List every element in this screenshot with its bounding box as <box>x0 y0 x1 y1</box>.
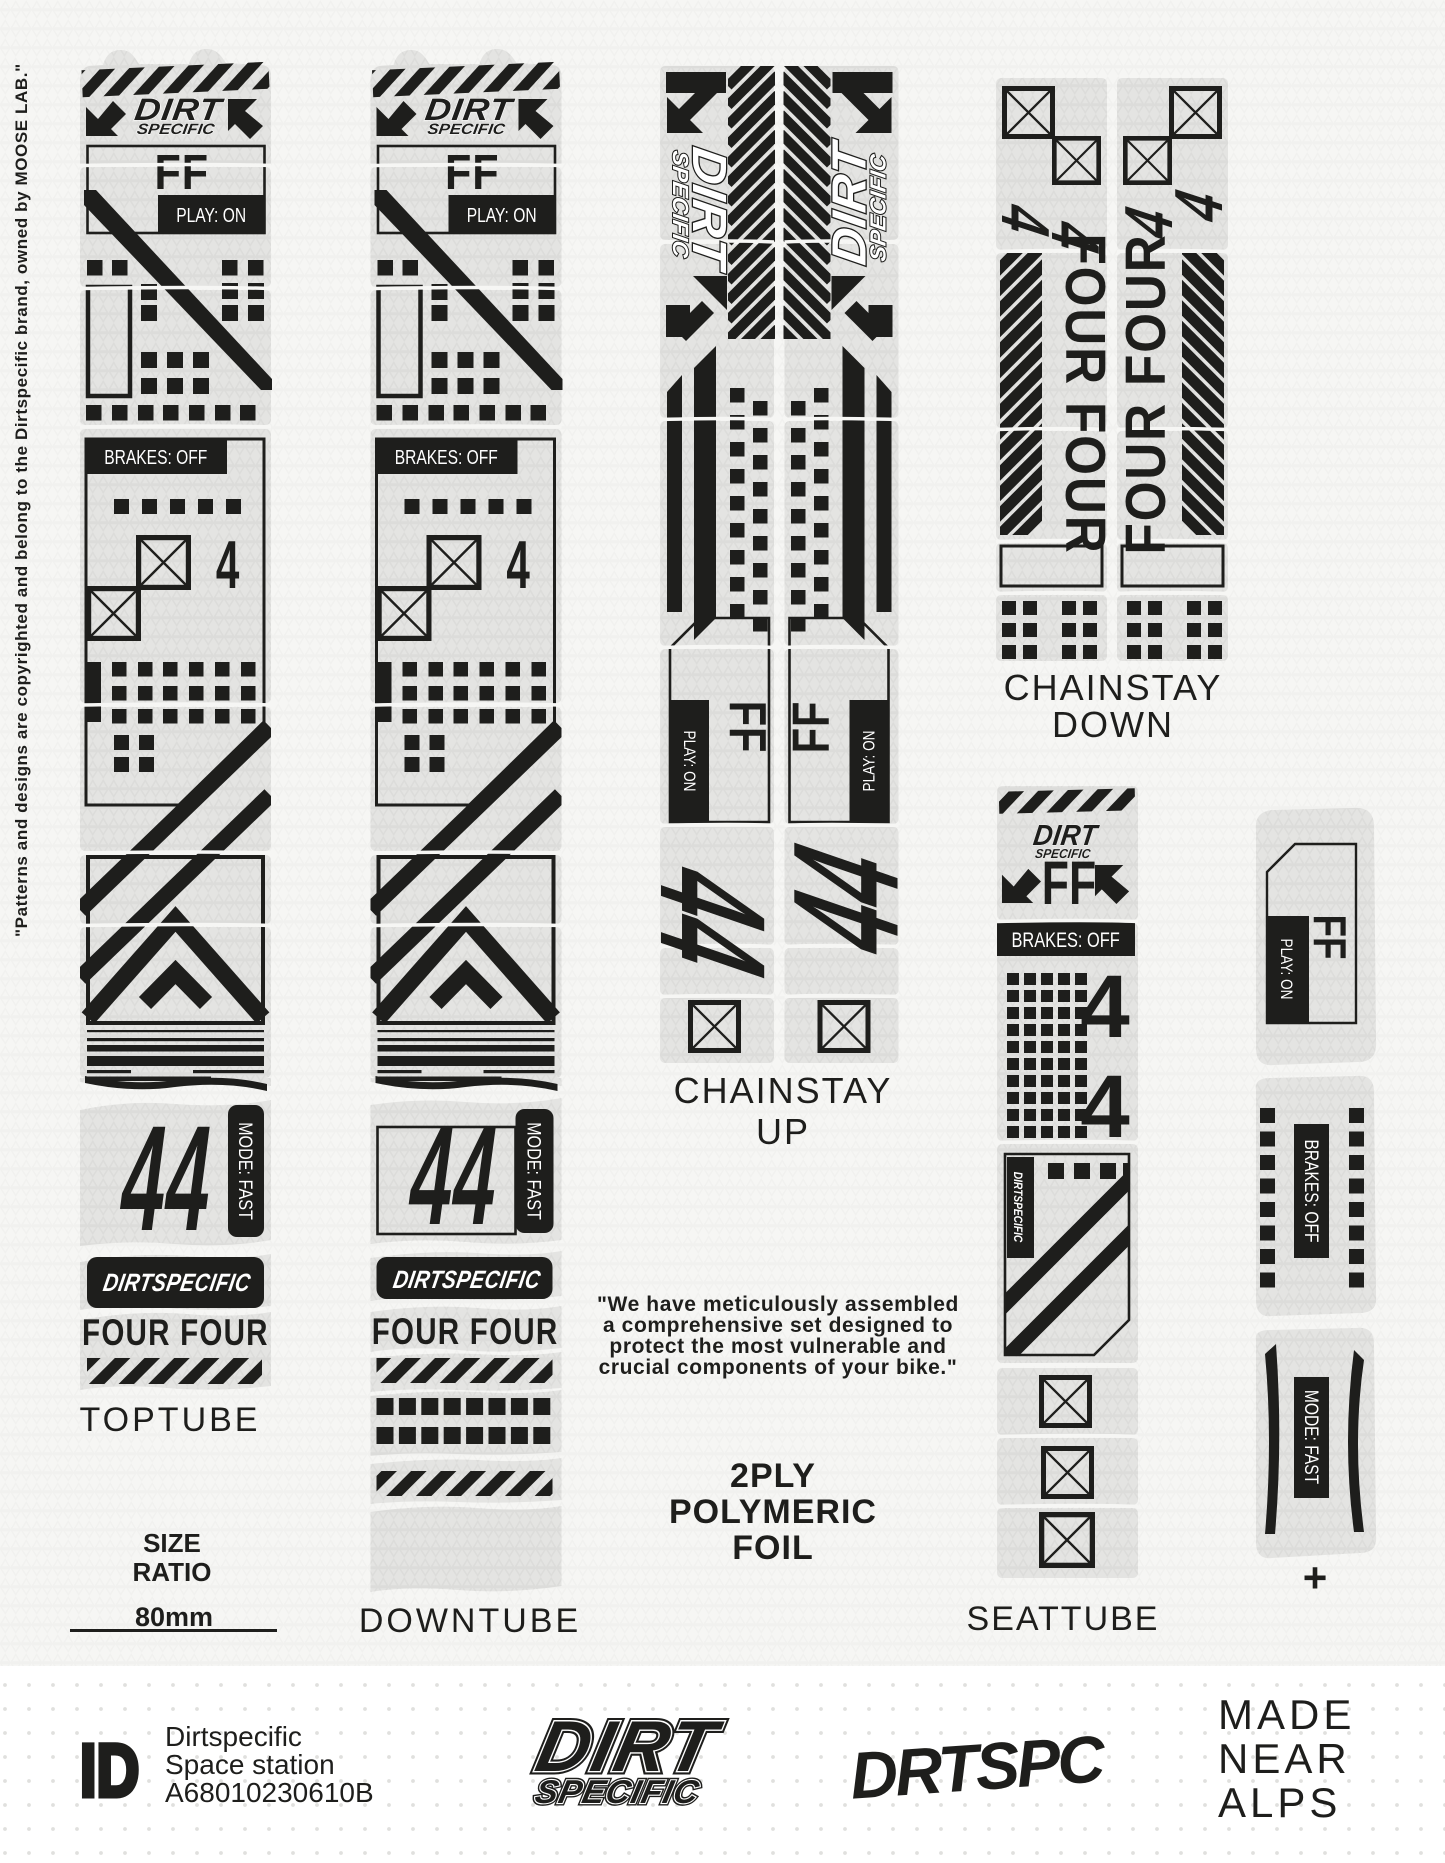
svg-text:FOUR FOUR: FOUR FOUR <box>82 1313 269 1354</box>
svg-text:a comprehensive set designed: a comprehensive set designed to <box>603 1314 953 1337</box>
svg-text:SPECIFIC: SPECIFIC <box>532 1775 703 1811</box>
svg-text:Dirtspecific: Dirtspecific <box>165 1721 302 1752</box>
svg-text:UP: UP <box>756 1111 810 1152</box>
svg-text:FOIL: FOIL <box>732 1529 813 1567</box>
svg-text:A68010230610B: A68010230610B <box>165 1777 374 1808</box>
svg-text:Space station: Space station <box>165 1749 335 1780</box>
svg-text:MODE: FAST: MODE: FAST <box>235 1122 257 1220</box>
svg-text:DOWNTUBE: DOWNTUBE <box>359 1602 581 1640</box>
svg-text:4: 4 <box>216 527 240 603</box>
svg-text:"We have meticulously assemble: "We have meticulously assembled <box>597 1293 959 1316</box>
svg-text:protect the most vulnerable an: protect the most vulnerable and <box>609 1335 946 1358</box>
svg-text:PLAY: ON: PLAY: ON <box>860 731 879 792</box>
svg-text:4: 4 <box>506 527 530 603</box>
svg-text:MADE: MADE <box>1218 1691 1355 1738</box>
svg-text:RATIO: RATIO <box>133 1557 212 1587</box>
svg-text:FOUR FOUR: FOUR FOUR <box>1115 233 1178 554</box>
svg-text:crucial components of your bik: crucial components of your bike." <box>599 1356 958 1379</box>
svg-text:FF: FF <box>781 701 840 753</box>
svg-text:SPECIFIC: SPECIFIC <box>426 122 506 138</box>
svg-text:NEAR: NEAR <box>1218 1735 1351 1782</box>
svg-text:SEATTUBE: SEATTUBE <box>967 1600 1160 1638</box>
svg-text:MODE: FAST: MODE: FAST <box>523 1122 545 1220</box>
svg-text:SPECIFIC: SPECIFIC <box>865 152 890 263</box>
svg-text:TOPTUBE: TOPTUBE <box>80 1401 261 1439</box>
svg-text:FOUR FOUR: FOUR FOUR <box>1053 233 1116 554</box>
svg-text:SPECIFIC: SPECIFIC <box>668 149 693 260</box>
svg-text:MODE: FAST: MODE: FAST <box>1301 1390 1323 1485</box>
svg-text:DIRTSPECIFIC: DIRTSPECIFIC <box>101 1268 253 1296</box>
svg-text:FF: FF <box>155 144 209 199</box>
svg-text:CHAINSTAY: CHAINSTAY <box>1004 667 1223 708</box>
svg-text:DIRTSPECIFIC: DIRTSPECIFIC <box>391 1265 543 1293</box>
svg-text:POLYMERIC: POLYMERIC <box>669 1493 877 1531</box>
svg-text:SIZE: SIZE <box>143 1528 201 1558</box>
svg-text:FOUR FOUR: FOUR FOUR <box>372 1312 559 1353</box>
svg-text:DIRTSPECIFIC: DIRTSPECIFIC <box>1011 1172 1024 1243</box>
svg-text:PLAY: ON: PLAY: ON <box>467 204 537 226</box>
svg-text:FF: FF <box>445 144 499 199</box>
svg-text:BRAKES: OFF: BRAKES: OFF <box>1301 1140 1323 1243</box>
svg-text:FF: FF <box>719 701 778 753</box>
svg-text:FF: FF <box>1042 850 1096 917</box>
svg-text:"Patterns and designs are copy: "Patterns and designs are copyrighted an… <box>12 63 31 937</box>
svg-text:BRAKES: OFF: BRAKES: OFF <box>395 446 498 468</box>
svg-text:PLAY: ON: PLAY: ON <box>1277 939 1296 1000</box>
svg-text:DOWN: DOWN <box>1052 704 1174 745</box>
svg-text:PLAY: ON: PLAY: ON <box>680 731 699 792</box>
svg-text:BRAKES: OFF: BRAKES: OFF <box>1011 928 1119 951</box>
svg-text:SPECIFIC: SPECIFIC <box>136 122 216 138</box>
svg-text:ID: ID <box>80 1730 139 1813</box>
svg-text:FF: FF <box>1304 915 1356 960</box>
svg-text:CHAINSTAY: CHAINSTAY <box>674 1070 893 1111</box>
svg-text:BRAKES: OFF: BRAKES: OFF <box>104 446 207 468</box>
svg-text:2PLY: 2PLY <box>730 1457 816 1495</box>
svg-text:+: + <box>1303 1554 1328 1601</box>
svg-text:PLAY: ON: PLAY: ON <box>176 204 246 226</box>
svg-text:ALPS: ALPS <box>1218 1779 1341 1826</box>
svg-text:80mm: 80mm <box>135 1602 213 1632</box>
svg-text:4: 4 <box>1080 956 1130 1056</box>
